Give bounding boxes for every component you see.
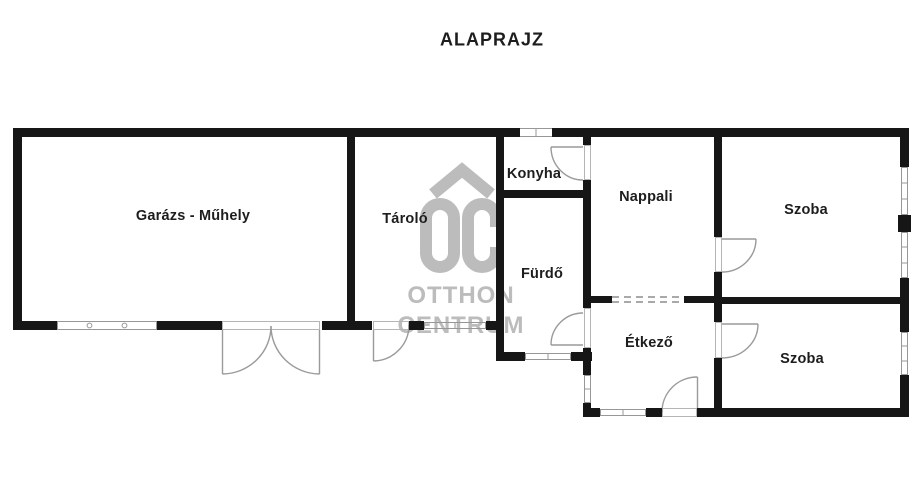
wall-segment — [486, 321, 496, 330]
door-leaves-and-arcs — [223, 147, 759, 413]
room-label-room-top: Szoba — [784, 202, 828, 218]
wall-segment — [583, 180, 591, 308]
wall-segment — [13, 128, 22, 330]
gate-knob-icon — [122, 323, 127, 328]
wall-segment — [496, 137, 504, 361]
wall-segment — [504, 190, 584, 198]
wall-segment — [900, 375, 909, 417]
room-label-kitchen: Konyha — [507, 166, 561, 182]
wall-segment — [583, 348, 591, 375]
floorplan-canvas: ALAPRAJZ OTTHON CENTRUM — [0, 0, 921, 500]
room-label-storage: Tároló — [382, 211, 428, 227]
wall-segment — [583, 403, 591, 417]
wall-segment — [697, 408, 909, 417]
wall-segment — [898, 215, 911, 232]
wall-segment — [347, 137, 355, 330]
wall-segment — [13, 321, 57, 330]
wall-segment — [591, 296, 612, 303]
wall-segment — [900, 128, 909, 167]
wall-segment — [714, 272, 722, 322]
wall-segment — [714, 137, 722, 237]
wall-segment — [13, 128, 520, 137]
room-label-room-bottom: Szoba — [780, 351, 824, 367]
door-swing-layer — [0, 0, 921, 500]
room-label-garage-workshop: Garázs - Műhely — [136, 208, 250, 224]
wall-segment — [157, 321, 222, 330]
wall-segment — [583, 137, 591, 145]
gate-knob-icon — [87, 323, 92, 328]
wall-segment — [900, 278, 909, 332]
wall-segment — [684, 296, 714, 303]
wall-segment — [646, 408, 662, 417]
wall-segment — [552, 128, 909, 137]
room-label-bathroom: Fürdő — [521, 266, 563, 282]
wall-segment — [409, 321, 424, 330]
room-label-living-room: Nappali — [619, 189, 673, 205]
page-title: ALAPRAJZ — [440, 30, 544, 51]
wall-segment — [722, 297, 900, 304]
wall-segment — [714, 358, 722, 417]
room-label-dining: Étkező — [625, 335, 673, 351]
